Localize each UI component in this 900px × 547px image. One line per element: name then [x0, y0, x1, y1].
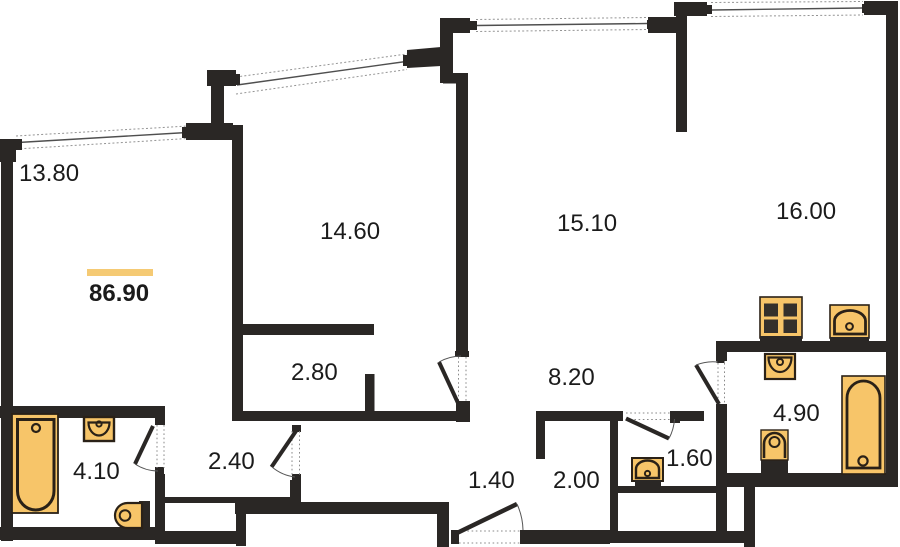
svg-text:8.20: 8.20 [548, 364, 595, 391]
svg-text:16.00: 16.00 [776, 198, 836, 225]
svg-text:4.90: 4.90 [773, 400, 820, 427]
svg-text:14.60: 14.60 [320, 218, 380, 245]
svg-text:1.60: 1.60 [666, 445, 713, 472]
svg-text:15.10: 15.10 [557, 210, 617, 237]
svg-text:13.80: 13.80 [19, 160, 79, 187]
svg-text:4.10: 4.10 [73, 458, 120, 485]
svg-text:2.40: 2.40 [208, 448, 255, 475]
svg-text:86.90: 86.90 [89, 280, 149, 307]
svg-text:1.40: 1.40 [468, 467, 515, 494]
svg-text:2.80: 2.80 [291, 359, 338, 386]
svg-text:2.00: 2.00 [553, 467, 600, 494]
